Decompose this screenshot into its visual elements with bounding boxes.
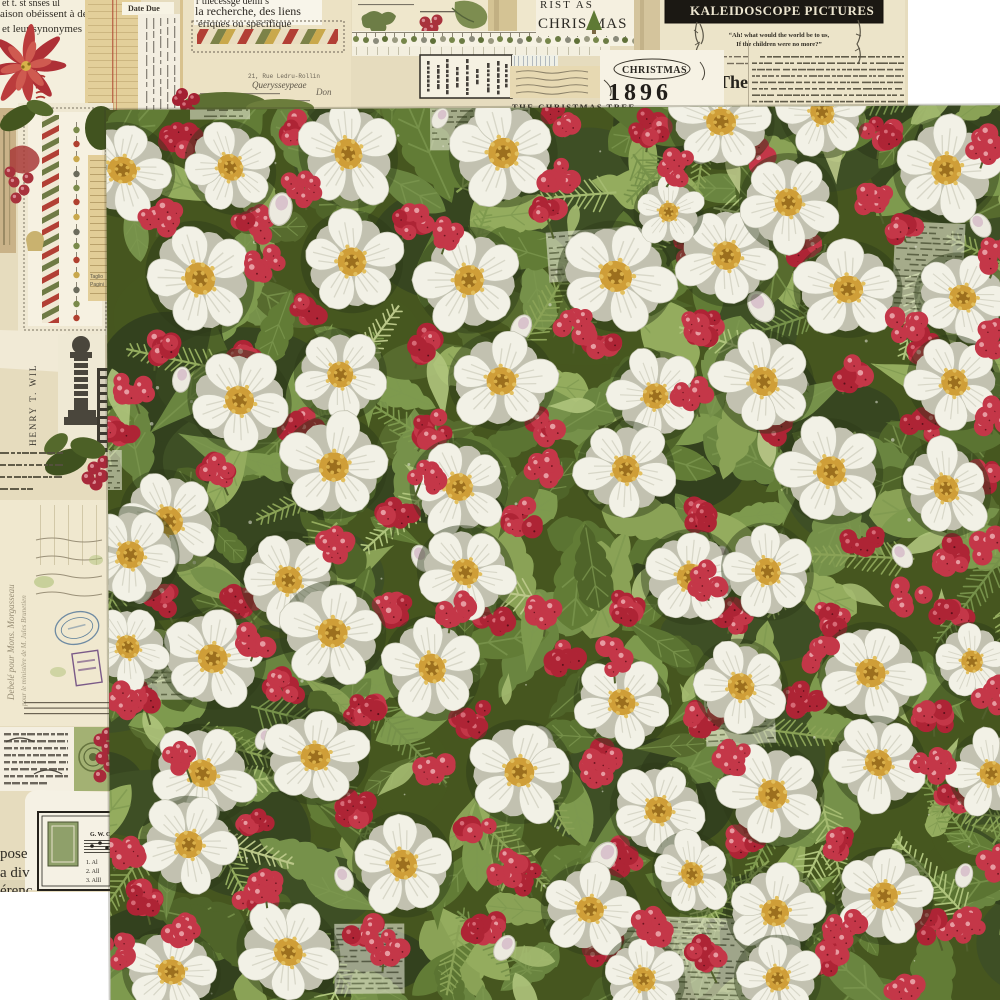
svg-text:“Ah! what would the world be t: “Ah! what would the world be to us, <box>729 32 830 39</box>
svg-text:et leur synonymes: et leur synonymes <box>2 23 82 35</box>
svg-text:RIST AS: RIST AS <box>540 0 594 11</box>
svg-text:Pagini: Pagini <box>90 282 104 288</box>
svg-text:If the children were no more?”: If the children were no more?” <box>736 41 821 48</box>
svg-text:la recherche, des liens: la recherche, des liens <box>195 4 301 18</box>
svg-text:HENRY T. WIL: HENRY T. WIL <box>28 364 38 446</box>
svg-text:G. W. C: G. W. C <box>90 832 110 838</box>
svg-text:ériques ou spécifique: ériques ou spécifique <box>198 18 292 30</box>
svg-text:Don: Don <box>315 87 332 97</box>
svg-text:Taglio: Taglio <box>90 274 103 280</box>
svg-text:Querysseypeae: Querysseypeae <box>252 80 306 90</box>
svg-text:3. Alll: 3. Alll <box>86 878 101 884</box>
svg-text:KALEIDOSCOPE PICTURES: KALEIDOSCOPE PICTURES <box>690 3 874 18</box>
svg-text:pose: pose <box>0 846 28 862</box>
svg-text:a div: a div <box>0 865 30 881</box>
svg-text:21, Rue Ledru-Rollin: 21, Rue Ledru-Rollin <box>248 73 320 80</box>
svg-text:Date Due: Date Due <box>128 4 160 13</box>
svg-text:pour le ministère de M. Jules: pour le ministère de M. Jules Brunetien <box>20 595 28 707</box>
svg-text:2. All: 2. All <box>86 869 100 875</box>
svg-text:Debelé pour Mons. Morgasseau: Debelé pour Mons. Morgasseau <box>6 584 16 701</box>
svg-text:aison obéissent à de: aison obéissent à de <box>0 8 88 20</box>
svg-text:CHRIS MAS: CHRIS MAS <box>538 16 627 32</box>
svg-text:CHRISTMAS: CHRISTMAS <box>622 65 687 76</box>
svg-text:1. Al: 1. Al <box>86 860 98 866</box>
